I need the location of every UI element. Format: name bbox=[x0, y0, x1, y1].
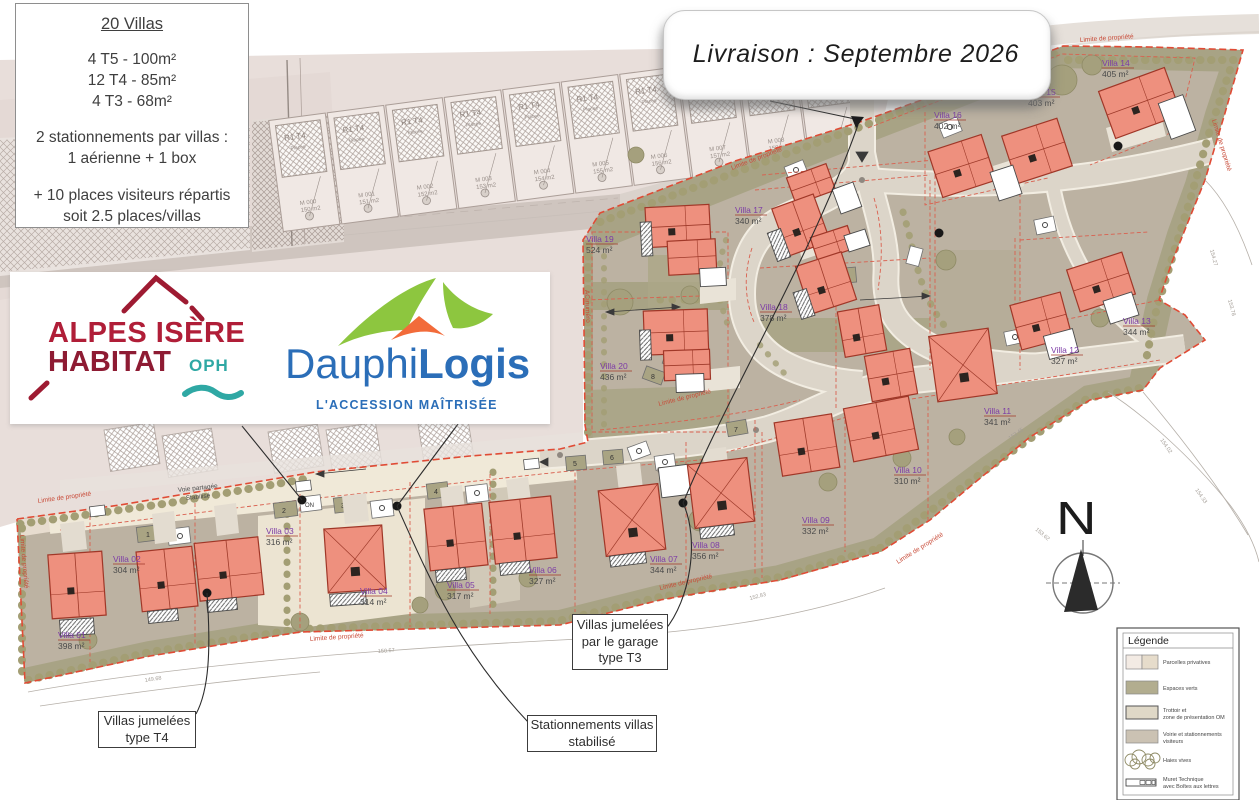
svg-text:Villa 11: Villa 11 bbox=[984, 406, 1011, 416]
svg-text:344 m²: 344 m² bbox=[650, 565, 677, 575]
svg-text:332 m²: 332 m² bbox=[802, 526, 829, 536]
svg-text:AC numéro: AC numéro bbox=[583, 290, 591, 323]
svg-text:Muret Technique: Muret Technique bbox=[1163, 777, 1204, 783]
svg-text:ALPES ISÈRE: ALPES ISÈRE bbox=[48, 315, 245, 349]
svg-text:150.57: 150.57 bbox=[378, 648, 395, 655]
svg-text:Trottoir et: Trottoir et bbox=[1163, 708, 1187, 714]
svg-text:Villa 08: Villa 08 bbox=[692, 540, 720, 550]
svg-text:Villa 19: Villa 19 bbox=[586, 234, 614, 244]
svg-text:405 m²: 405 m² bbox=[1102, 69, 1129, 79]
svg-text:436 m²: 436 m² bbox=[600, 372, 627, 382]
svg-text:DauphiLogis: DauphiLogis bbox=[285, 340, 530, 387]
svg-text:Villa 18: Villa 18 bbox=[760, 302, 788, 312]
svg-text:Villa 01: Villa 01 bbox=[58, 630, 86, 640]
svg-text:4: 4 bbox=[434, 489, 438, 496]
svg-text:316 m²: 316 m² bbox=[266, 537, 293, 547]
svg-text:Villa 12: Villa 12 bbox=[1051, 345, 1079, 355]
svg-text:8: 8 bbox=[651, 374, 655, 381]
svg-text:HABITAT: HABITAT bbox=[48, 346, 171, 378]
svg-text:Voirie et stationnements: Voirie et stationnements bbox=[1163, 732, 1222, 738]
svg-text:Villa 14: Villa 14 bbox=[1102, 58, 1130, 68]
svg-text:310 m²: 310 m² bbox=[894, 476, 921, 486]
svg-text:Légende: Légende bbox=[1128, 635, 1169, 647]
svg-text:Haies vives: Haies vives bbox=[1163, 758, 1191, 764]
svg-text:Villa 10: Villa 10 bbox=[894, 465, 922, 475]
svg-text:Villa 03: Villa 03 bbox=[266, 526, 294, 536]
svg-text:314 m²: 314 m² bbox=[360, 597, 387, 607]
svg-text:Villa 09: Villa 09 bbox=[802, 515, 830, 525]
svg-text:L'ACCESSION MAÎTRISÉE: L'ACCESSION MAÎTRISÉE bbox=[316, 397, 498, 412]
svg-text:327 m²: 327 m² bbox=[529, 576, 556, 586]
svg-text:Espaces verts: Espaces verts bbox=[1163, 686, 1198, 692]
svg-text:6: 6 bbox=[610, 455, 614, 462]
svg-text:5: 5 bbox=[573, 461, 577, 468]
svg-text:zone de présentation OM: zone de présentation OM bbox=[1163, 715, 1225, 721]
svg-text:Parcelles privatives: Parcelles privatives bbox=[1163, 660, 1211, 666]
svg-text:317 m²: 317 m² bbox=[447, 591, 474, 601]
svg-text:N: N bbox=[1056, 493, 1097, 544]
svg-text:avec Boîtes aux lettres: avec Boîtes aux lettres bbox=[1163, 784, 1219, 790]
svg-text:OPH: OPH bbox=[189, 356, 229, 375]
svg-text:7: 7 bbox=[734, 427, 738, 434]
svg-text:344 m²: 344 m² bbox=[1123, 327, 1150, 337]
svg-text:Villa 20: Villa 20 bbox=[600, 361, 628, 371]
svg-text:304 m²: 304 m² bbox=[113, 565, 140, 575]
svg-text:402 m²: 402 m² bbox=[934, 121, 961, 131]
svg-text:Villa 02: Villa 02 bbox=[113, 554, 141, 564]
svg-text:Villa 06: Villa 06 bbox=[529, 565, 557, 575]
svg-text:524 m²: 524 m² bbox=[586, 245, 613, 255]
svg-text:ON: ON bbox=[305, 503, 314, 509]
svg-text:Villa 13: Villa 13 bbox=[1123, 316, 1151, 326]
svg-text:visiteurs: visiteurs bbox=[1163, 739, 1183, 745]
svg-text:378 m²: 378 m² bbox=[760, 313, 787, 323]
svg-text:356 m²: 356 m² bbox=[692, 551, 719, 561]
svg-text:341 m²: 341 m² bbox=[984, 417, 1011, 427]
svg-text:Villa 16: Villa 16 bbox=[934, 110, 962, 120]
svg-text:2: 2 bbox=[282, 508, 286, 515]
svg-text:340 m²: 340 m² bbox=[735, 216, 762, 226]
svg-text:1: 1 bbox=[146, 532, 150, 539]
svg-text:327 m²: 327 m² bbox=[1051, 356, 1078, 366]
svg-text:Villa 17: Villa 17 bbox=[735, 205, 763, 215]
svg-text:398 m²: 398 m² bbox=[58, 641, 85, 651]
svg-text:Villa 07: Villa 07 bbox=[650, 554, 678, 564]
svg-text:Villa 05: Villa 05 bbox=[447, 580, 475, 590]
svg-text:Villa 04: Villa 04 bbox=[360, 586, 388, 596]
